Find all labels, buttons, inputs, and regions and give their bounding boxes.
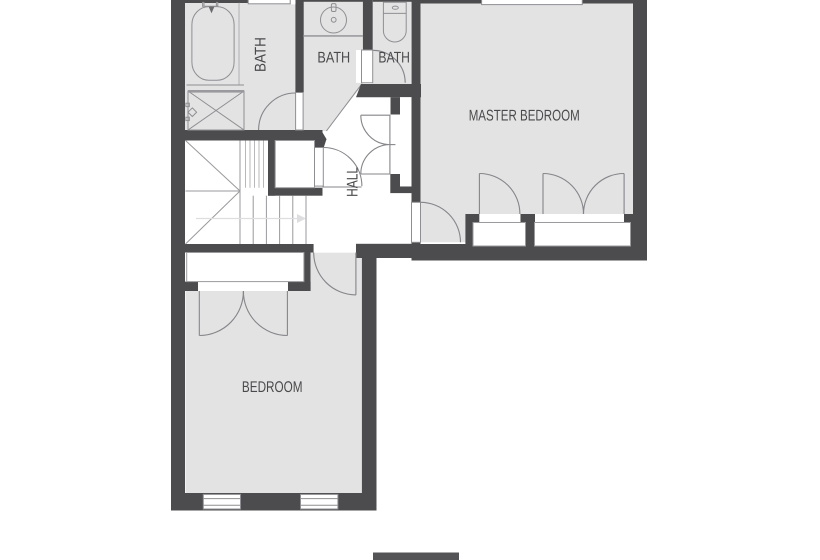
svg-text:HALL: HALL bbox=[344, 167, 361, 197]
svg-text:BATH: BATH bbox=[252, 37, 269, 72]
svg-text:MASTER BEDROOM: MASTER BEDROOM bbox=[469, 107, 580, 124]
svg-text:BATH: BATH bbox=[317, 50, 350, 67]
svg-text:BEDROOM: BEDROOM bbox=[242, 379, 303, 396]
svg-text:BATH: BATH bbox=[378, 50, 410, 67]
